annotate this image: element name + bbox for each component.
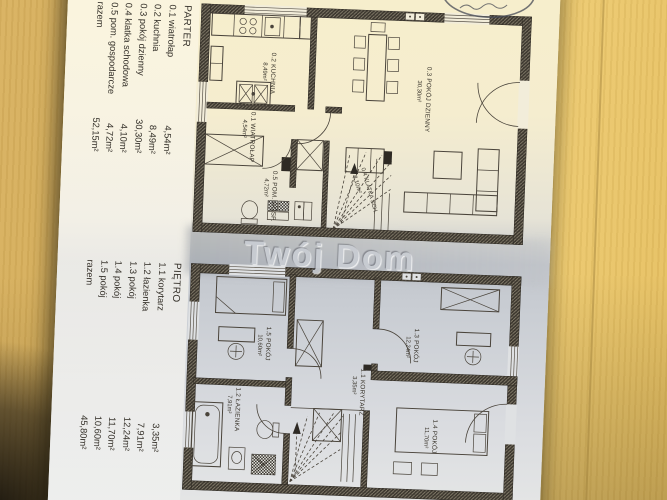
floor-plan-sheet: 0.2 KUCHNIA 8,49m² 0.3 POKÓJ DZIENNY 30,… (47, 0, 561, 500)
stamp-handwriting (460, 3, 507, 11)
legend-pietro: PIĘTRO 1.1 korytarz3,35m² 1.2 łazienka7,… (75, 259, 183, 453)
wood-plank-seam (585, 0, 605, 500)
rotated-document-layer: PARTER 0.1 wiatrołap4,54m² 0.2 kuchnia8,… (47, 0, 561, 500)
stamp (435, 0, 541, 27)
legend-parter: PARTER 0.1 wiatrołap4,54m² 0.2 kuchnia8,… (87, 1, 194, 155)
photo-of-floor-plan: 0.2 KUCHNIA 8,49m² 0.3 POKÓJ DZIENNY 30,… (0, 0, 667, 500)
